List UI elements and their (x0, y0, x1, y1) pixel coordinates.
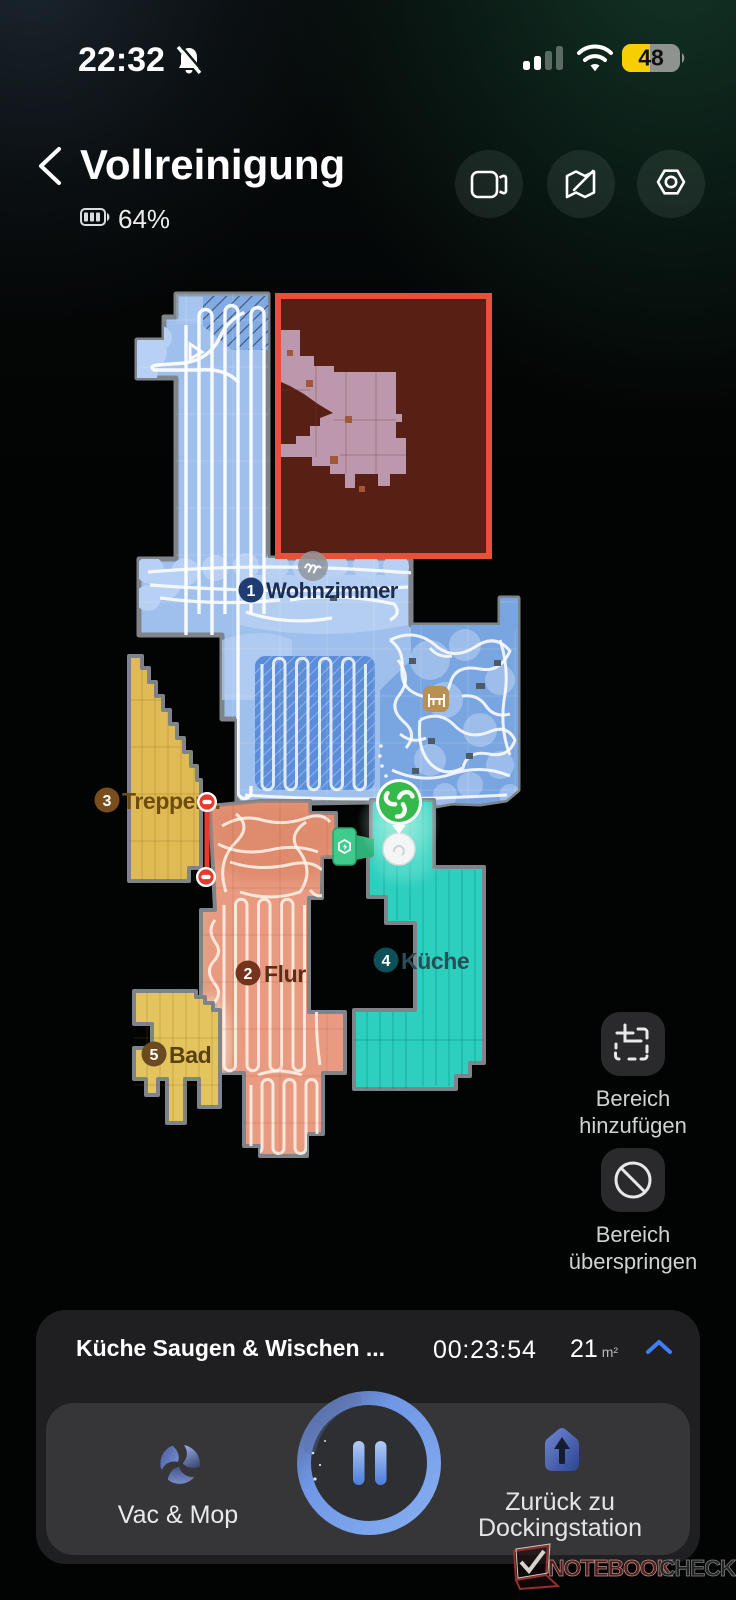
svg-text:1: 1 (247, 583, 256, 600)
svg-text:NOTEBOOK: NOTEBOOK (548, 1555, 674, 1581)
svg-text:Flur: Flur (264, 961, 306, 987)
svg-text:2: 2 (244, 966, 253, 983)
svg-text:Bad: Bad (169, 1042, 211, 1068)
svg-text:4: 4 (382, 953, 391, 970)
svg-text:5: 5 (150, 1047, 159, 1064)
svg-text:CHECK: CHECK (659, 1555, 736, 1581)
svg-text:Wohnzimmer: Wohnzimmer (266, 578, 399, 603)
svg-text:3: 3 (103, 793, 112, 810)
svg-text:Küche: Küche (401, 948, 469, 974)
